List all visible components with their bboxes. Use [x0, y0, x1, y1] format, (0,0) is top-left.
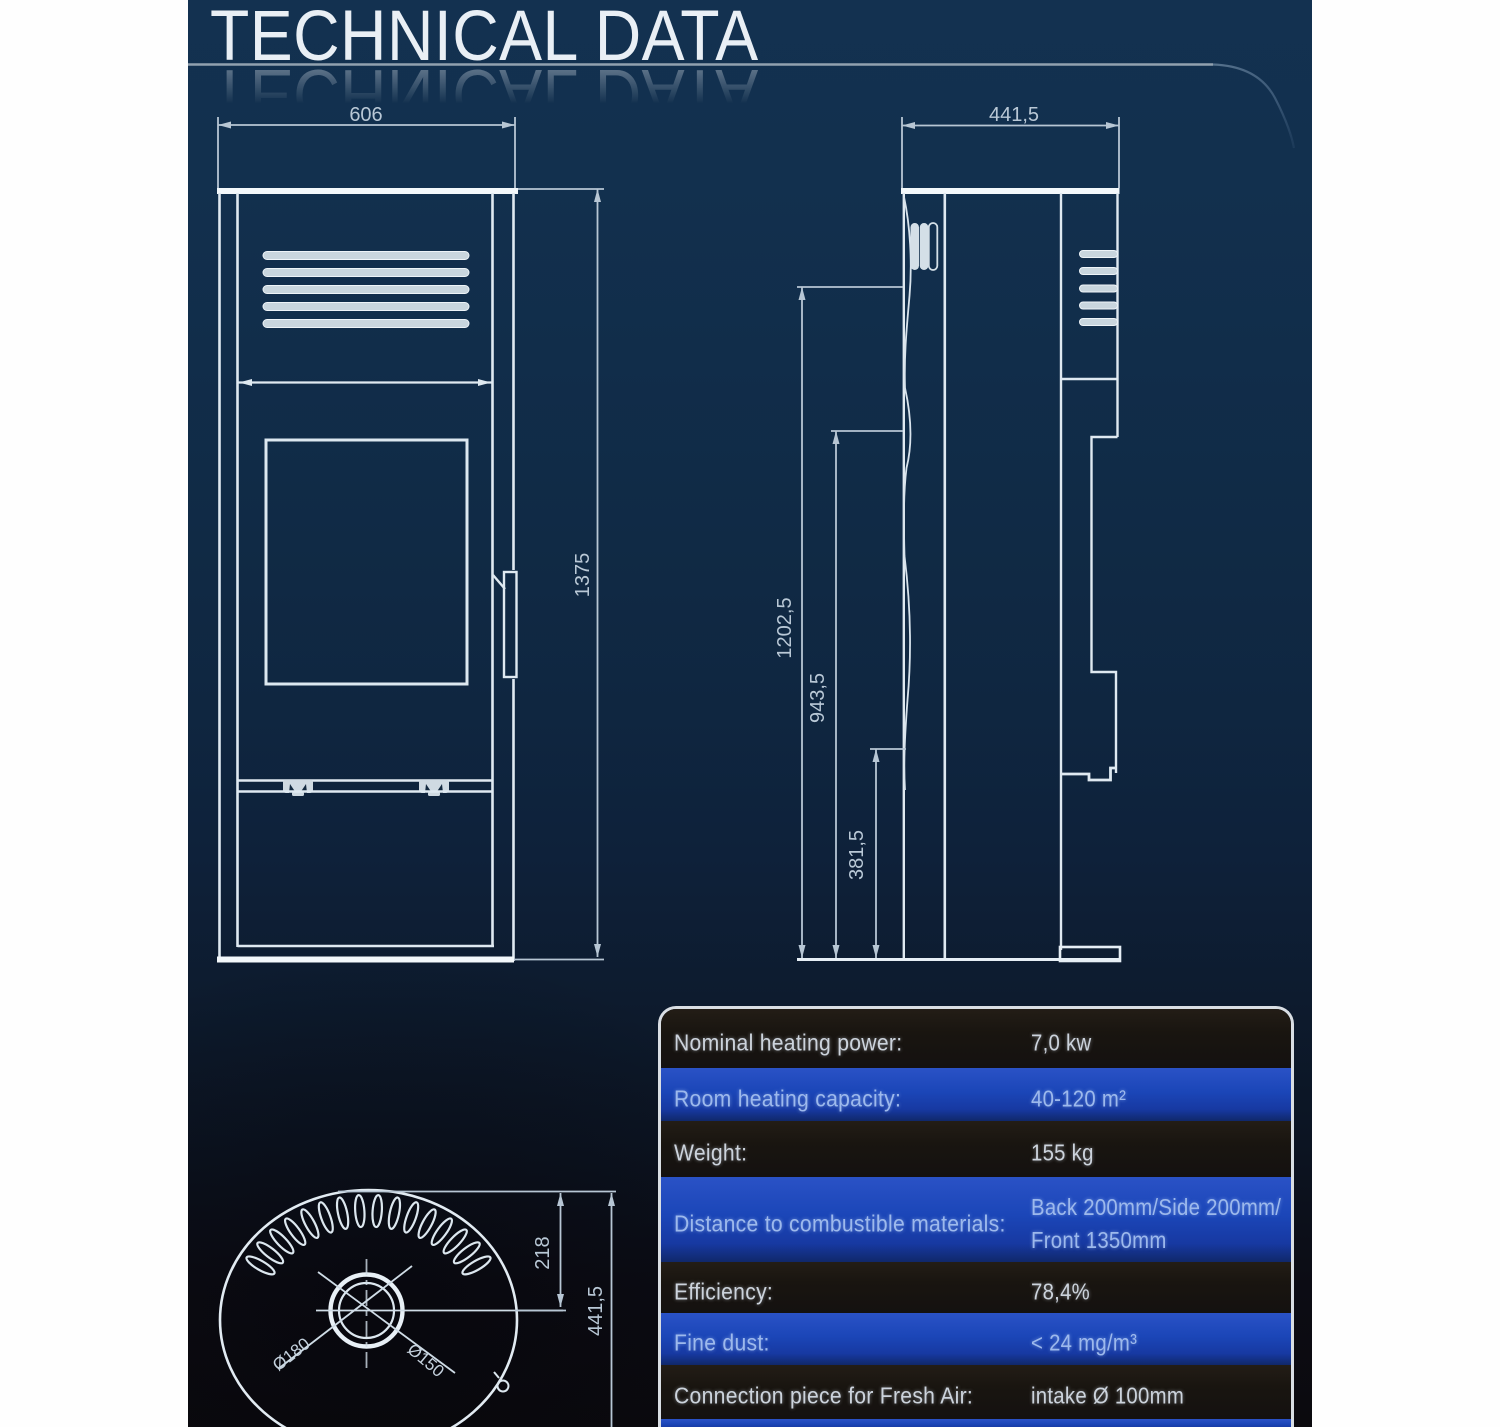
svg-text:Ø150: Ø150 [404, 1340, 448, 1381]
svg-text:943,5: 943,5 [807, 673, 829, 723]
svg-text:441,5: 441,5 [585, 1286, 607, 1336]
svg-text:606: 606 [349, 104, 382, 126]
svg-text:218: 218 [532, 1236, 554, 1269]
svg-text:1202,5: 1202,5 [774, 597, 796, 658]
svg-text:1375: 1375 [572, 553, 594, 598]
svg-text:Ø180: Ø180 [269, 1334, 313, 1375]
svg-text:381,5: 381,5 [846, 830, 868, 880]
svg-text:441,5: 441,5 [989, 104, 1039, 126]
